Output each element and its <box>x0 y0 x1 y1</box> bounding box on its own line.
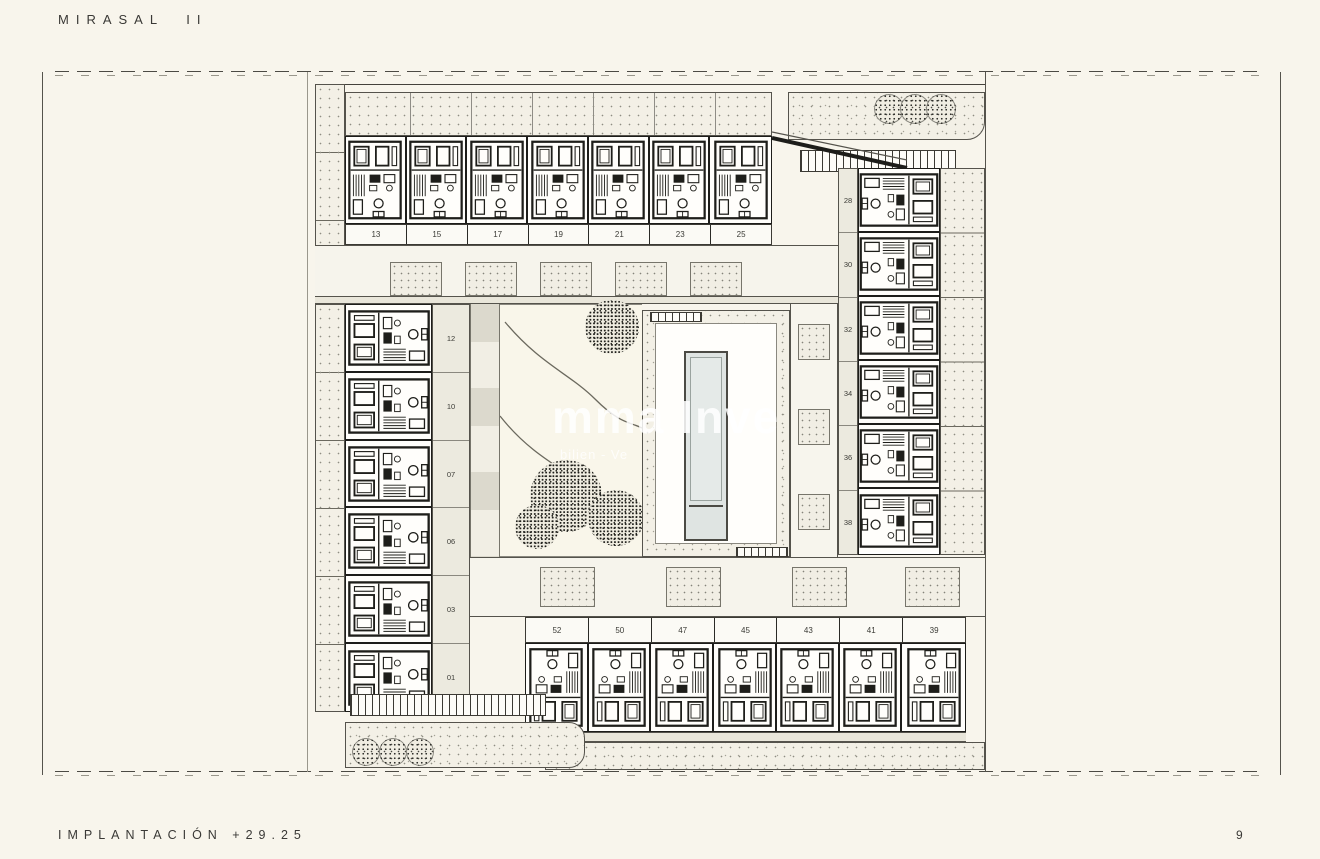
unit-number: 06 <box>433 508 469 576</box>
unit-number: 52 <box>526 618 589 642</box>
planting-patch <box>798 324 830 360</box>
unit-floorplan-06 <box>346 508 431 576</box>
unit-number: 32 <box>839 298 857 362</box>
pool <box>684 351 728 541</box>
unit-number: 28 <box>839 169 857 233</box>
plot-edge-left <box>307 72 308 772</box>
planting-patch <box>666 567 721 607</box>
unit-floorplan-34 <box>859 361 939 425</box>
unit-number: 12 <box>433 305 469 373</box>
unit-floorplan-47 <box>651 644 714 731</box>
divider-band-bottom <box>525 732 966 742</box>
unit-number: 21 <box>589 225 650 244</box>
unit-number: 34 <box>839 362 857 426</box>
unit-floorplan-13 <box>346 137 407 223</box>
planting-patch <box>690 262 742 296</box>
page-title: MIRASAL II <box>58 12 207 27</box>
deck-mat-top <box>650 312 702 322</box>
unit-floorplan-21 <box>589 137 650 223</box>
watermark-tagline: bilien - Ve <box>560 447 628 462</box>
courtyard-path <box>470 304 500 557</box>
boundary-line-right <box>1280 72 1281 775</box>
plan-top-edge <box>315 84 985 85</box>
planting-patch <box>540 262 592 296</box>
unit-floorplan-50 <box>589 644 652 731</box>
unit-floorplan-10 <box>346 373 431 441</box>
unit-floorplan-25 <box>710 137 771 223</box>
unit-number: 47 <box>652 618 715 642</box>
top-number-band: 13 15 17 19 21 23 25 <box>345 224 772 245</box>
courtyard-tree <box>585 300 639 354</box>
tree <box>406 738 434 766</box>
page-number: 9 <box>1236 828 1243 842</box>
garden-strip-left <box>315 304 345 712</box>
boundary-line-bottom <box>55 771 1265 772</box>
unit-floorplan-39 <box>902 644 965 731</box>
pergola-strip-bottom-left <box>350 694 546 716</box>
left-unit-column <box>345 304 432 712</box>
boundary-line-top <box>55 71 1265 72</box>
boundary-line-top-2 <box>55 75 1265 76</box>
planting-patch <box>798 494 830 530</box>
unit-floorplan-19 <box>528 137 589 223</box>
unit-number: 17 <box>468 225 529 244</box>
bottom-number-band: 52 50 47 45 43 41 39 <box>525 617 966 643</box>
bottom-unit-row <box>525 643 966 732</box>
unit-floorplan-32 <box>859 297 939 361</box>
unit-number: 13 <box>346 225 407 244</box>
planting-patch <box>465 262 517 296</box>
unit-number: 10 <box>433 373 469 441</box>
planting-patch <box>390 262 442 296</box>
courtyard-tree <box>515 505 559 549</box>
right-number-strip: 28 30 32 34 36 38 <box>838 168 858 555</box>
right-unit-column <box>858 168 940 555</box>
unit-floorplan-03 <box>346 576 431 644</box>
unit-floorplan-12 <box>346 305 431 373</box>
unit-number: 41 <box>840 618 903 642</box>
unit-floorplan-45 <box>714 644 777 731</box>
watermark-text: mma Inve <box>552 390 780 444</box>
tree <box>352 738 380 766</box>
unit-number: 25 <box>711 225 771 244</box>
unit-floorplan-30 <box>859 233 939 297</box>
planting-patch <box>798 409 830 445</box>
unit-number: 07 <box>433 441 469 509</box>
boundary-line-bottom-2 <box>55 775 1265 776</box>
planting-patch <box>615 262 667 296</box>
unit-number: 43 <box>777 618 840 642</box>
boundary-line-left <box>42 72 43 775</box>
unit-floorplan-36 <box>859 425 939 489</box>
unit-floorplan-28 <box>859 169 939 233</box>
garden-band-bottom <box>545 742 985 770</box>
unit-floorplan-52 <box>526 644 589 731</box>
unit-floorplan-23 <box>650 137 711 223</box>
unit-number: 45 <box>715 618 778 642</box>
unit-number: 50 <box>589 618 652 642</box>
left-number-strip: 12 10 07 06 03 01 <box>432 304 470 712</box>
unit-floorplan-07 <box>346 441 431 509</box>
unit-floorplan-38 <box>859 489 939 552</box>
deck-mat-bottom <box>736 547 788 557</box>
unit-number: 23 <box>650 225 711 244</box>
unit-number: 38 <box>839 491 857 554</box>
unit-floorplan-17 <box>467 137 528 223</box>
unit-number: 19 <box>529 225 590 244</box>
planting-patch <box>905 567 960 607</box>
planting-patch <box>792 567 847 607</box>
unit-floorplan-41 <box>840 644 903 731</box>
unit-floorplan-43 <box>777 644 840 731</box>
tree <box>379 738 407 766</box>
planting-patch <box>540 567 595 607</box>
unit-number: 15 <box>407 225 468 244</box>
pool-divider <box>689 505 723 507</box>
courtyard-tree <box>588 490 644 546</box>
top-unit-row <box>345 136 772 224</box>
tree <box>926 94 956 124</box>
unit-floorplan-15 <box>407 137 468 223</box>
unit-number: 30 <box>839 233 857 297</box>
garden-strip-right <box>940 168 985 555</box>
unit-number: 03 <box>433 576 469 644</box>
unit-number: 39 <box>903 618 965 642</box>
garden-band-top <box>345 92 772 136</box>
drawing-caption: IMPLANTACIÓN +29.25 <box>58 828 307 842</box>
unit-number: 36 <box>839 426 857 490</box>
